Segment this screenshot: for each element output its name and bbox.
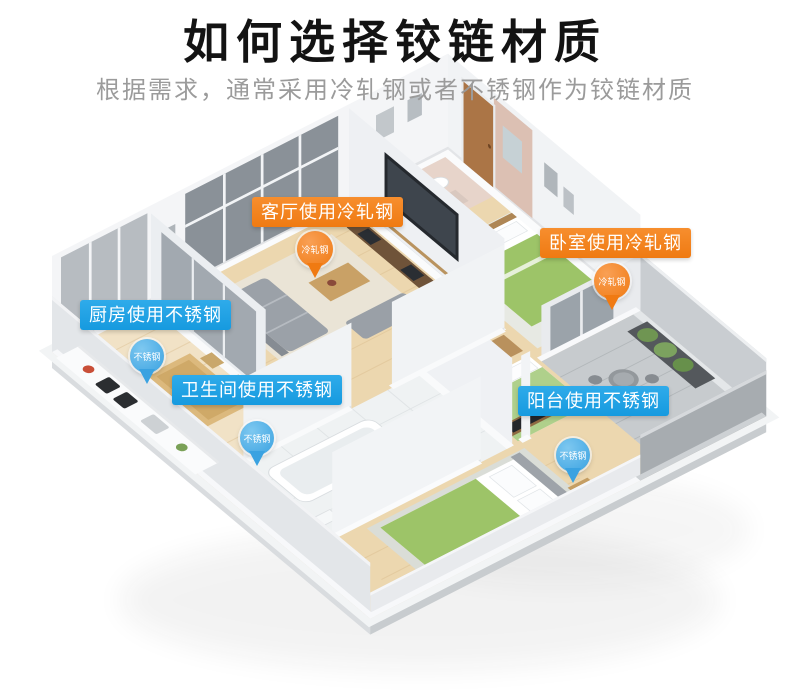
- pin-living-room-label: 冷轧钢: [297, 231, 333, 267]
- pin-tail-icon: [604, 295, 620, 310]
- pin-bathroom: 不锈钢: [240, 421, 274, 466]
- pin-tail-icon: [139, 369, 155, 384]
- infographic-stage: 如何选择铰链材质 根据需求，通常采用冷轧钢或者不锈钢作为铰链材质 客厅使用冷轧钢…: [0, 0, 790, 695]
- pin-bedroom: 冷轧钢: [594, 263, 630, 310]
- callout-kitchen: 厨房使用不锈钢: [80, 300, 231, 330]
- page-subtitle: 根据需求，通常采用冷轧钢或者不锈钢作为铰链材质: [0, 70, 790, 105]
- pin-living-room: 冷轧钢: [297, 231, 333, 278]
- pin-balcony-label: 不锈钢: [556, 438, 590, 472]
- pin-tail-icon: [249, 451, 265, 466]
- pin-bedroom-label: 冷轧钢: [594, 263, 630, 299]
- callout-living-room: 客厅使用冷轧钢: [252, 197, 403, 227]
- pin-balcony: 不锈钢: [556, 438, 590, 483]
- pin-tail-icon: [565, 468, 581, 483]
- page-title: 如何选择铰链材质: [0, 6, 790, 72]
- callout-bedroom: 卧室使用冷轧钢: [540, 228, 691, 258]
- pin-kitchen-label: 不锈钢: [130, 339, 164, 373]
- pin-kitchen: 不锈钢: [130, 339, 164, 384]
- callout-bathroom: 卫生间使用不锈钢: [172, 375, 342, 405]
- pin-bathroom-label: 不锈钢: [240, 421, 274, 455]
- callout-balcony: 阳台使用不锈钢: [518, 386, 669, 416]
- pin-tail-icon: [307, 263, 323, 278]
